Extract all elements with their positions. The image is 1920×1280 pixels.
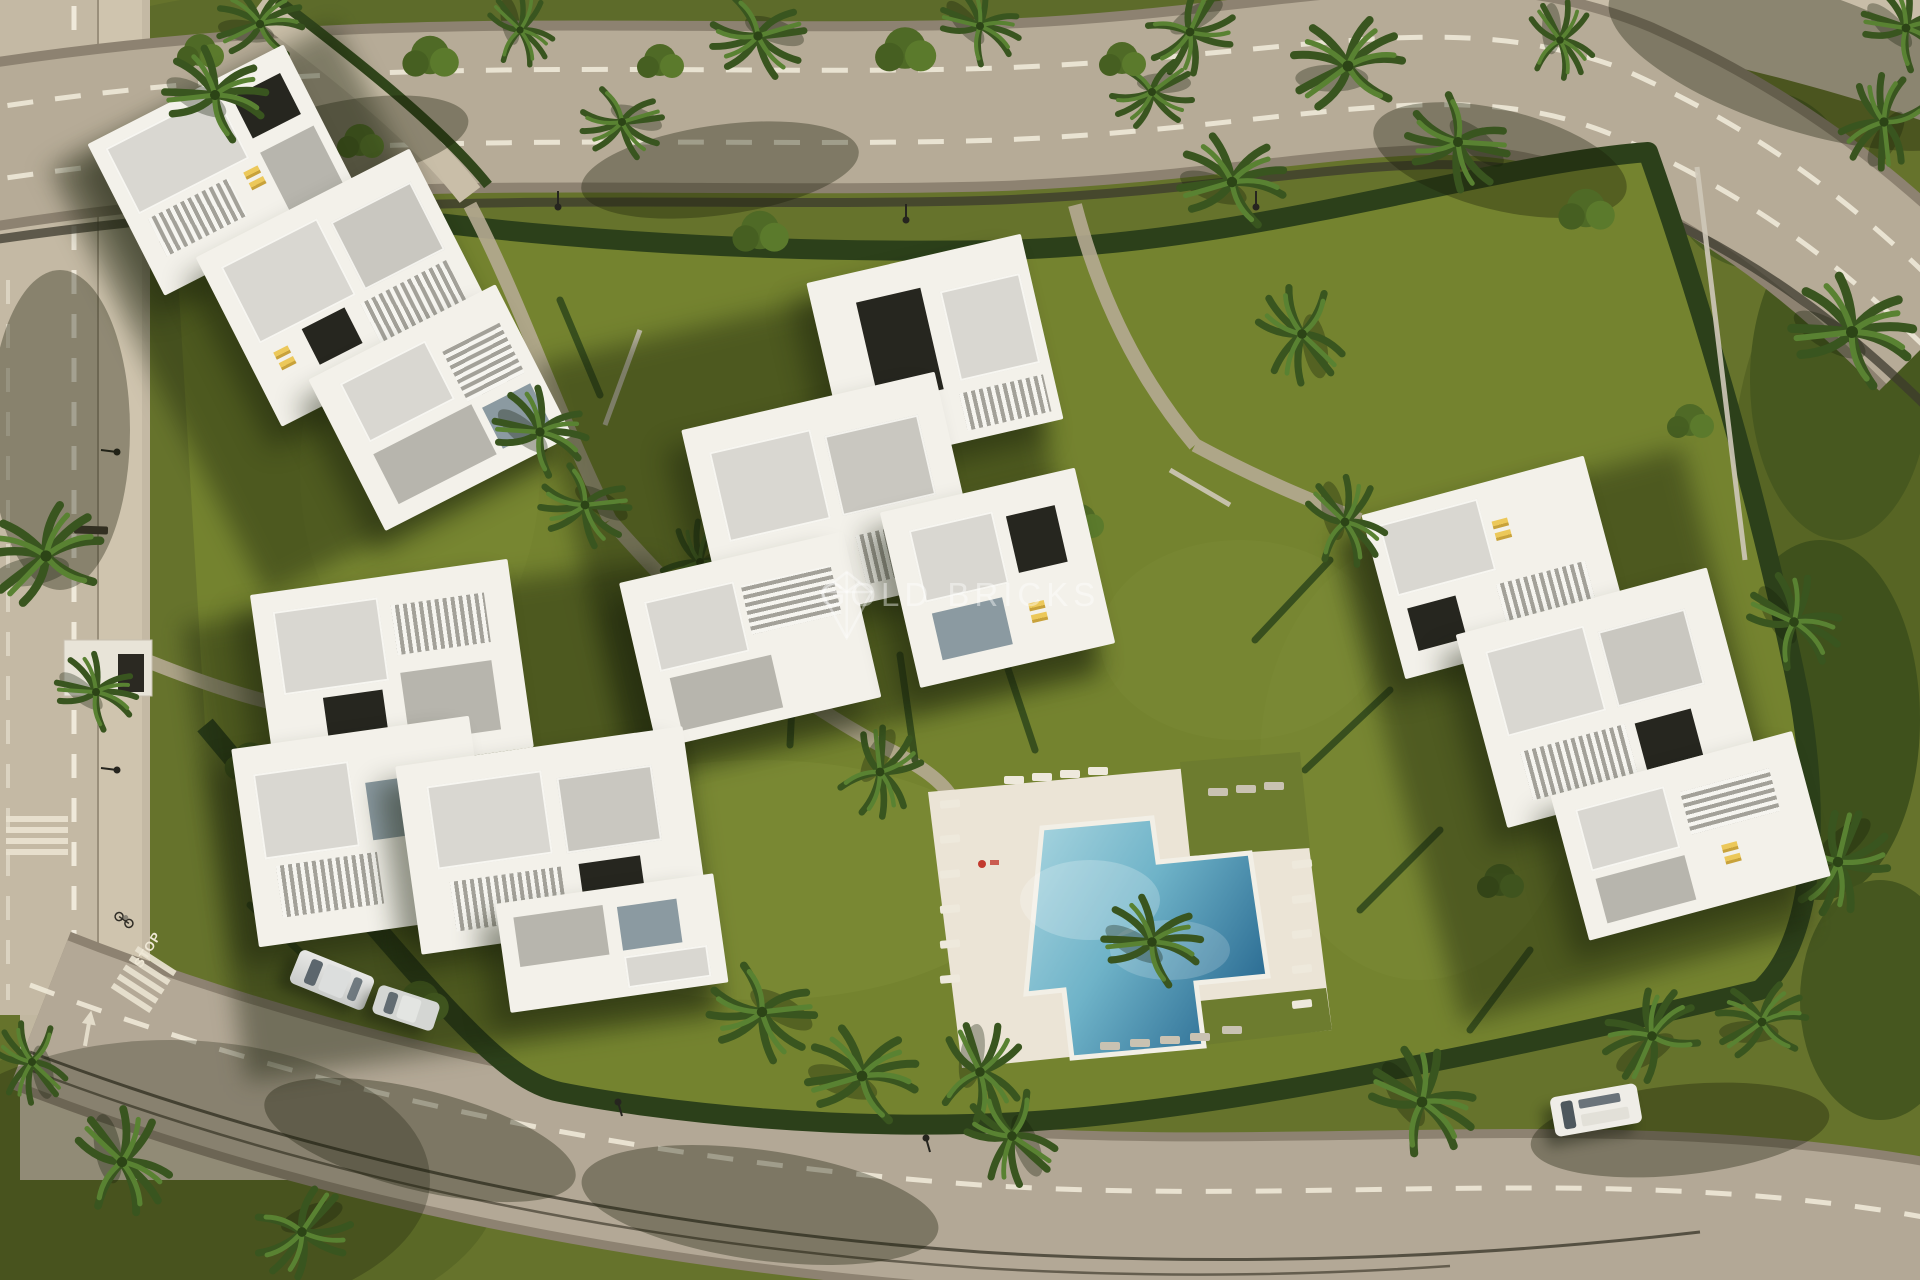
roof-terrace (1598, 609, 1705, 708)
roof-terrace (824, 415, 936, 516)
roof-terrace (556, 765, 662, 854)
yellow-lounger (1724, 853, 1742, 865)
pool-area (928, 752, 1332, 1068)
yellow-lounger (1492, 518, 1510, 530)
roof-terrace (1485, 625, 1606, 736)
pergola-slats (442, 323, 524, 402)
roof-terrace (624, 945, 712, 988)
watermark: GOLD BRICKS (820, 570, 1101, 614)
aerial-render-scene: GOLD BRICKS STOP (0, 0, 1920, 1280)
terrace-deck (513, 905, 609, 967)
glass-balcony (617, 899, 683, 951)
roof-terrace (253, 761, 360, 860)
car-roof (396, 994, 422, 1023)
roof-terrace (273, 597, 390, 695)
yellow-lounger (1495, 529, 1513, 541)
roof-terrace (426, 770, 553, 869)
person-red (978, 860, 986, 868)
roof-terrace (709, 429, 831, 542)
van-side-windows (1578, 1093, 1621, 1109)
courtyard-opening (1006, 505, 1068, 573)
roof-terrace (940, 273, 1041, 381)
yellow-lounger (1721, 841, 1739, 853)
watermark-logo-icon (820, 570, 874, 640)
roof-terrace (1379, 499, 1497, 597)
courtyard-opening (232, 73, 301, 139)
pergola-slats (959, 374, 1051, 430)
yellow-lounger (279, 356, 297, 370)
van-windshield (1560, 1100, 1577, 1130)
van-body (1581, 1106, 1630, 1126)
glass-balcony (482, 383, 551, 449)
pergola-slats (391, 592, 491, 655)
roof-terrace (1575, 786, 1680, 872)
pergola-slats (1680, 768, 1780, 834)
pergola-slats (276, 852, 384, 918)
yellow-lounger (249, 176, 267, 190)
